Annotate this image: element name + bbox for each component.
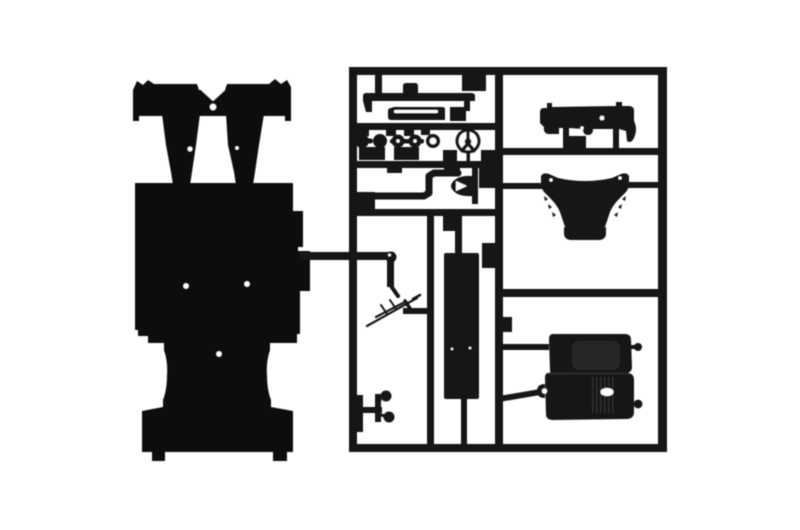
gate-block (386, 125, 396, 136)
seat-upper-cushion (572, 341, 620, 370)
sprue-top-rail (349, 67, 667, 75)
gate-block (359, 147, 385, 160)
hub-axle-12 (352, 139, 373, 144)
hub4-hole (413, 139, 416, 142)
sprue-hr1 (499, 148, 662, 155)
gate-block (404, 125, 414, 136)
steering-hub (465, 138, 472, 145)
hub3-hole (396, 139, 399, 142)
sprue-hr2 (499, 289, 662, 297)
gate-block (499, 317, 512, 332)
steering-stem (467, 153, 471, 162)
seat-bar-top (499, 344, 549, 350)
sill-slit (394, 110, 438, 113)
seat-ear-hole (542, 388, 547, 393)
chassis-runner (300, 252, 392, 260)
gate-block (567, 136, 586, 148)
top-cell-stub (375, 73, 382, 95)
dash-hole (600, 116, 605, 121)
sprue-h2 (353, 161, 499, 168)
gate-block (351, 395, 363, 432)
seat-split-line (549, 373, 629, 375)
mounting-knob-top (634, 343, 642, 351)
floor-hole-bottom (216, 351, 221, 356)
bridge-hole (210, 104, 216, 110)
gate-block (394, 147, 419, 160)
gate-block (421, 125, 430, 135)
pedal-pad-top (381, 391, 392, 402)
pedal-stem-bottom (381, 415, 385, 416)
seat-lower (545, 373, 634, 420)
antenna-crossbar (403, 308, 430, 314)
strut-right-speck (235, 146, 238, 149)
floor-hole-left (183, 283, 188, 288)
sprue-h3 (353, 209, 499, 216)
sprue-v-inner (427, 209, 434, 452)
gate-block (481, 150, 496, 162)
floor-panel (444, 253, 479, 399)
wheel-hub-2 (373, 134, 387, 148)
cowl-hole-right (618, 176, 621, 179)
joint-glint (388, 254, 391, 257)
gate-block (443, 209, 458, 231)
gate-block (462, 72, 486, 91)
chassis-floor-plate (135, 183, 310, 461)
panel-speck-1 (451, 348, 453, 350)
strut-left-speck (188, 147, 193, 152)
cowl-bar-left (499, 183, 544, 189)
pedal-post (375, 394, 381, 422)
runner-joint (386, 252, 397, 263)
product-photo (0, 0, 800, 530)
gate-block (443, 150, 457, 162)
sprue-right-rail (658, 67, 667, 452)
photo-svg (0, 0, 800, 530)
gate-block (482, 243, 497, 268)
seat-oval-hole (601, 388, 614, 396)
cowl-hole-left (549, 178, 552, 181)
floor-hole-right (244, 281, 249, 286)
panel-stem-bottom (461, 398, 467, 445)
gate-block (387, 162, 402, 173)
mounting-knob-bottom (634, 400, 643, 409)
gate-block (479, 167, 497, 188)
gate-block (450, 107, 466, 121)
panel-speck-2 (469, 347, 471, 349)
dash-notch (580, 126, 583, 129)
sprue-bottom-rail (349, 444, 667, 452)
bushing-hole (430, 138, 437, 145)
cowl-bar-right (626, 182, 662, 188)
part-side-sill (388, 107, 445, 120)
